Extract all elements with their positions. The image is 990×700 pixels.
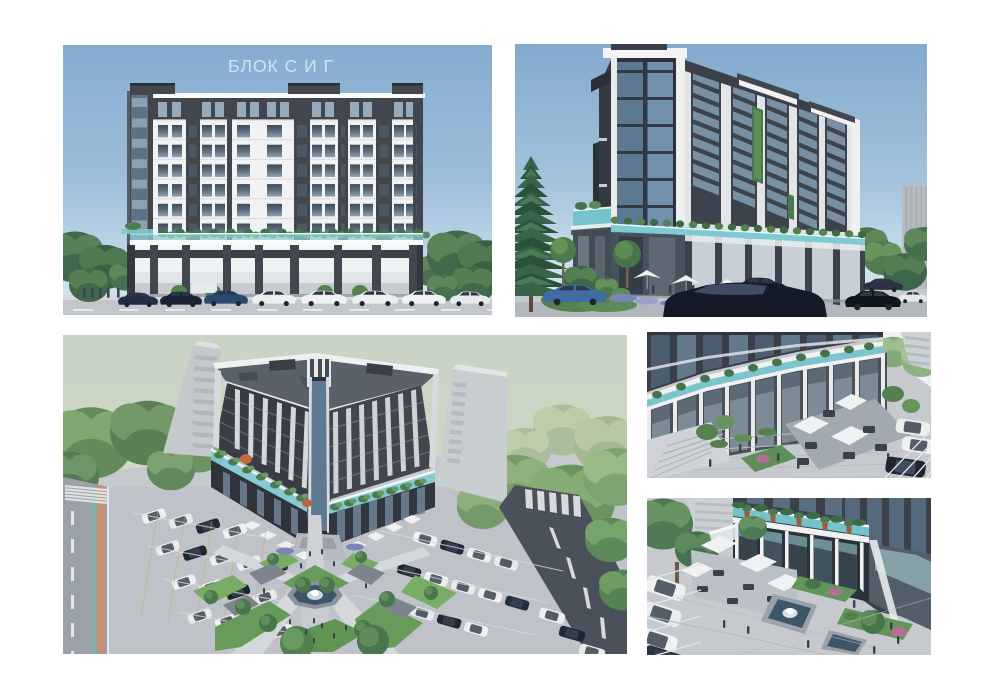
svg-text:БЛОК С И Г: БЛОК С И Г (228, 56, 334, 76)
